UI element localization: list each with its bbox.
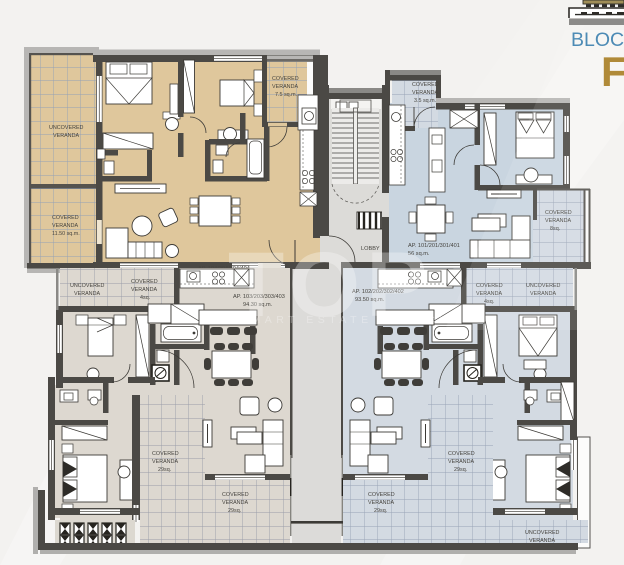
svg-text:FI: FI	[601, 48, 624, 95]
svg-text:29sq.: 29sq.	[454, 467, 467, 473]
svg-text:UNCOVERED: UNCOVERED	[70, 283, 105, 289]
svg-text:COVERED: COVERED	[222, 492, 249, 498]
svg-text:29sq.: 29sq.	[374, 508, 387, 514]
svg-text:UNCOVERED: UNCOVERED	[525, 530, 560, 536]
svg-text:COVERED: COVERED	[448, 451, 475, 457]
svg-text:4sq.: 4sq.	[140, 295, 150, 301]
svg-text:SMART ESTATE AGENCY: SMART ESTATE AGENCY	[240, 314, 451, 326]
svg-text:VERANDA: VERANDA	[52, 223, 78, 229]
svg-text:VERANDA: VERANDA	[74, 291, 100, 297]
svg-text:VERANDA: VERANDA	[412, 90, 438, 96]
svg-text:VERANDA: VERANDA	[272, 84, 298, 90]
svg-text:VERANDA: VERANDA	[368, 500, 394, 506]
svg-text:COVERED: COVERED	[368, 492, 395, 498]
svg-text:COVERED: COVERED	[152, 451, 179, 457]
svg-text:VERANDA: VERANDA	[53, 133, 79, 139]
svg-text:3.5 sq.m.: 3.5 sq.m.	[414, 98, 436, 104]
svg-text:VERANDA: VERANDA	[152, 459, 178, 465]
svg-text:COVERED: COVERED	[52, 215, 79, 221]
svg-text:COVERED: COVERED	[131, 279, 158, 285]
svg-text:UNCOVERED: UNCOVERED	[49, 125, 84, 131]
svg-text:7.5 sq.m.: 7.5 sq.m.	[275, 92, 297, 98]
svg-text:VERANDA: VERANDA	[131, 287, 157, 293]
svg-text:VERANDA: VERANDA	[222, 500, 248, 506]
svg-text:COVERED: COVERED	[272, 76, 299, 82]
svg-text:VERANDA: VERANDA	[448, 459, 474, 465]
svg-text:29sq.: 29sq.	[158, 467, 171, 473]
svg-text:29sq.: 29sq.	[228, 508, 241, 514]
svg-text:11.50 sq.m.: 11.50 sq.m.	[52, 231, 80, 237]
svg-text:COVERED: COVERED	[412, 82, 439, 88]
